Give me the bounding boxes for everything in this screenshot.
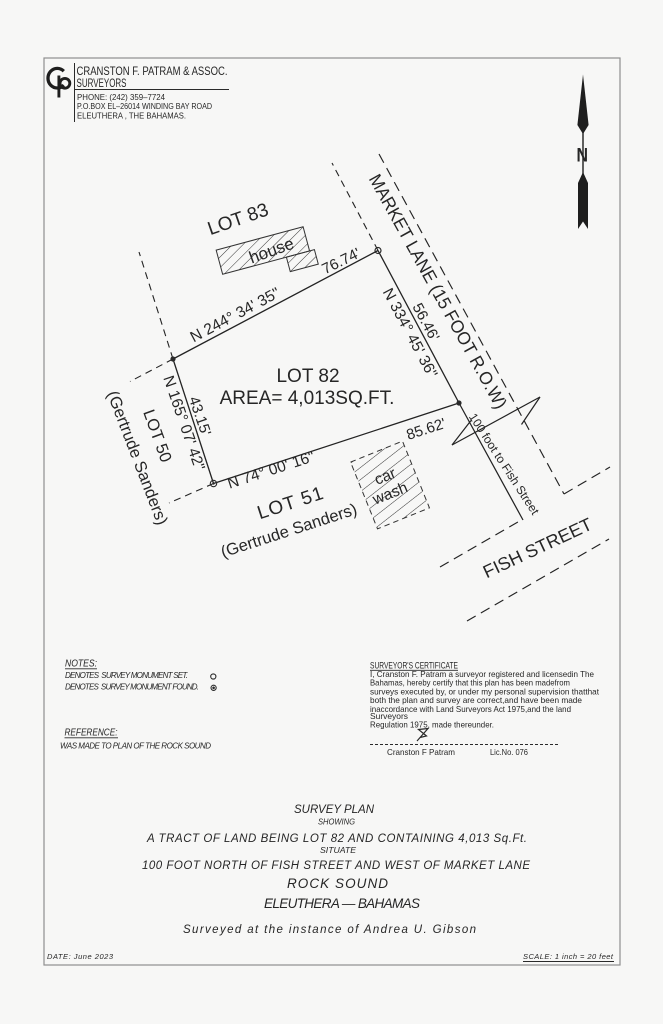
svg-text:Lic.No. 076: Lic.No. 076 <box>490 747 528 757</box>
svg-text:DENOTES SURVEY MONUMENT SET.: DENOTES SURVEY MONUMENT SET. <box>65 671 188 680</box>
svg-text:WAS MADE TO PLAN OF THE ROCK S: WAS MADE TO PLAN OF THE ROCK SOUND <box>60 742 211 751</box>
svg-text:ELEUTHERA , THE BAHAMAS.: ELEUTHERA , THE BAHAMAS. <box>77 112 186 121</box>
svg-text:Cranston F Patram: Cranston F Patram <box>387 747 455 757</box>
svg-text:SHOWING: SHOWING <box>318 818 355 827</box>
svg-text:REFERENCE:: REFERENCE: <box>65 727 118 739</box>
svg-text:A TRACT OF LAND BEING LOT 82 A: A TRACT OF LAND BEING LOT 82 AND CONTAIN… <box>146 833 527 845</box>
svg-text:NOTES:: NOTES: <box>65 658 97 670</box>
svg-text:Surveyed at the instance of An: Surveyed at the instance of Andrea U. Gi… <box>183 924 476 936</box>
svg-text:DATE: June 2023: DATE: June 2023 <box>47 952 114 961</box>
svg-text:LOT 82: LOT 82 <box>276 366 339 387</box>
svg-text:AREA= 4,013SQ.FT.: AREA= 4,013SQ.FT. <box>220 388 395 409</box>
svg-text:100 FOOT NORTH OF FISH STREET: 100 FOOT NORTH OF FISH STREET AND WEST O… <box>142 860 530 872</box>
svg-text:DENOTES SURVEY MONUMENT FOUND: DENOTES SURVEY MONUMENT FOUND. <box>65 682 199 691</box>
svg-text:P.O.BOX EL–26014 WINDING BAY R: P.O.BOX EL–26014 WINDING BAY ROAD <box>77 102 212 111</box>
svg-text:PHONE: (242) 359–7724: PHONE: (242) 359–7724 <box>77 93 166 102</box>
svg-text:SITUATE: SITUATE <box>320 845 356 855</box>
svg-text:SURVEY PLAN: SURVEY PLAN <box>294 804 375 816</box>
svg-text:SURVEYORS: SURVEYORS <box>77 78 127 90</box>
svg-text:CRANSTON F. PATRAM & ASSOC.: CRANSTON F. PATRAM & ASSOC. <box>77 66 228 78</box>
svg-text:SCALE: 1 inch = 20 feet: SCALE: 1 inch = 20 feet <box>523 952 614 961</box>
svg-text:ROCK SOUND: ROCK SOUND <box>287 876 388 891</box>
svg-text:Regulation 1975, made thereund: Regulation 1975, made thereunder. <box>370 719 494 729</box>
svg-text:N: N <box>577 146 589 167</box>
svg-text:ELEUTHERA — BAHAMAS: ELEUTHERA — BAHAMAS <box>264 896 420 911</box>
